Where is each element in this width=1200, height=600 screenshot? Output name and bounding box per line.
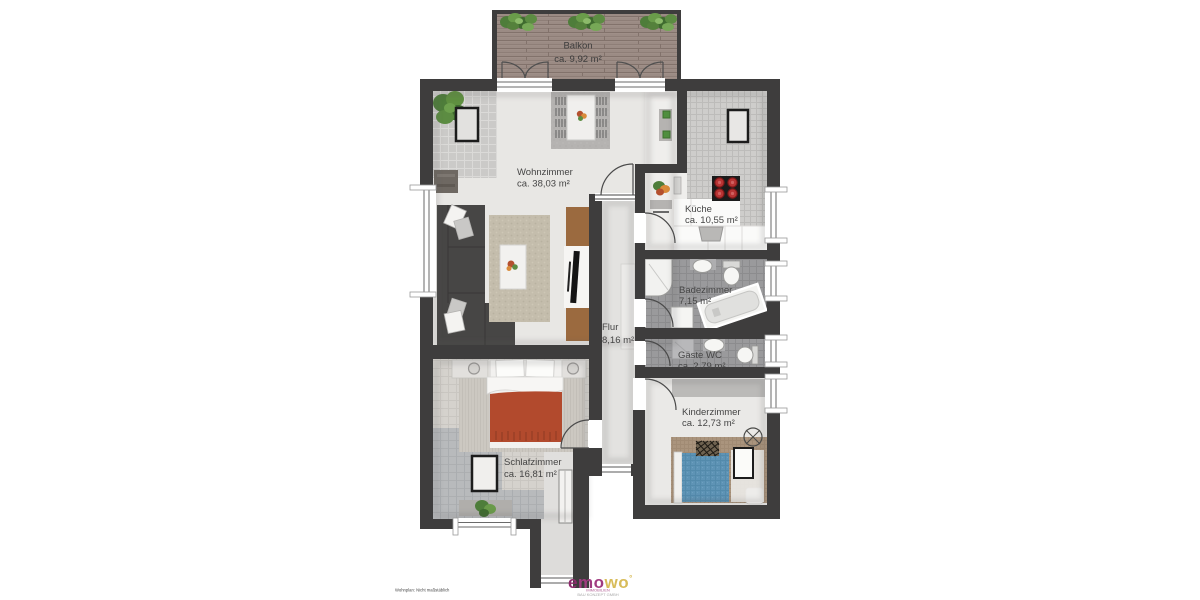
svg-text:ca. 9,92 m²: ca. 9,92 m² [554,54,602,65]
svg-text:ca. 38,03 m²: ca. 38,03 m² [517,179,570,190]
svg-text:7,15 m²: 7,15 m² [679,296,711,307]
svg-text:Flur: Flur [602,322,618,333]
svg-text:ca. 2,79 m²: ca. 2,79 m² [678,361,726,372]
svg-text:Schlafzimmer: Schlafzimmer [504,457,562,468]
svg-text:Badezimmer: Badezimmer [679,285,732,296]
svg-text:Balkon: Balkon [563,41,592,52]
svg-text:ca. 10,55 m²: ca. 10,55 m² [685,215,738,226]
svg-text:ca. 12,73 m²: ca. 12,73 m² [682,418,735,429]
svg-text:ca. 16,81 m²: ca. 16,81 m² [504,469,557,480]
svg-text:Kinderzimmer: Kinderzimmer [682,407,741,418]
svg-text:BAU KONZEPT GMBH: BAU KONZEPT GMBH [577,592,618,597]
svg-text:Gäste WC: Gäste WC [678,350,722,361]
svg-text:Küche: Küche [685,204,712,215]
svg-text:Wohnzimmer: Wohnzimmer [517,167,573,178]
svg-text:Wohnplan: Nicht maßstäblich: Wohnplan: Nicht maßstäblich [395,588,450,593]
svg-text:8,16 m²: 8,16 m² [602,335,634,346]
